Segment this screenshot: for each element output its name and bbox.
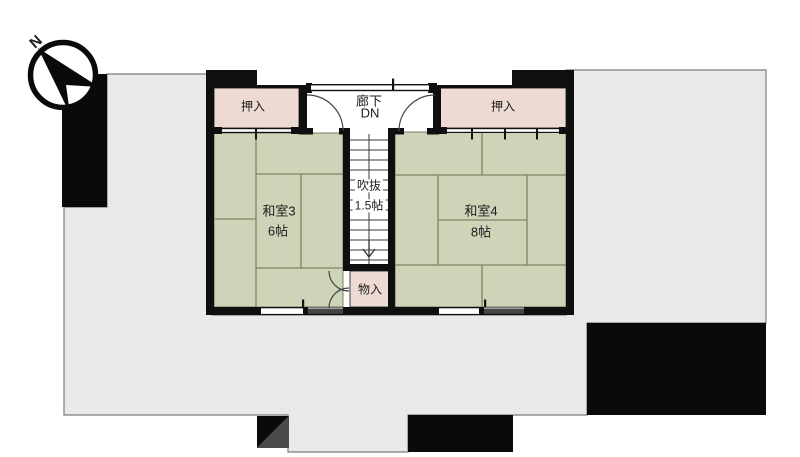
room-size-fukinuke: 1.5帖 — [353, 199, 386, 212]
room-size-washitsu3: 6帖 — [268, 221, 288, 240]
room-label-monoire: 物入 — [358, 281, 382, 298]
stairs-direction-label: DN — [361, 106, 380, 121]
room-label-washitsu4: 和室4 — [464, 201, 497, 220]
door-arc-washitsu4 — [399, 95, 435, 131]
room-label-oshiire-left: 押入 — [241, 98, 265, 115]
floor-plan-canvas: N 押入 押入 廊下 DN 和室3 6帖 和室4 8帖 吹抜 1.5帖 物入 — [0, 0, 800, 457]
room-label-oshiire-right: 押入 — [491, 98, 515, 115]
room-label-fukinuke: 吹抜 — [355, 179, 383, 192]
floor-plan-drawing — [0, 0, 800, 457]
room-size-washitsu4: 8帖 — [471, 222, 491, 241]
site-block-bottom-center — [408, 415, 513, 452]
room-label-washitsu3: 和室3 — [262, 201, 295, 220]
door-arc-washitsu3 — [307, 95, 343, 131]
site-block-bottom-right — [587, 323, 766, 415]
